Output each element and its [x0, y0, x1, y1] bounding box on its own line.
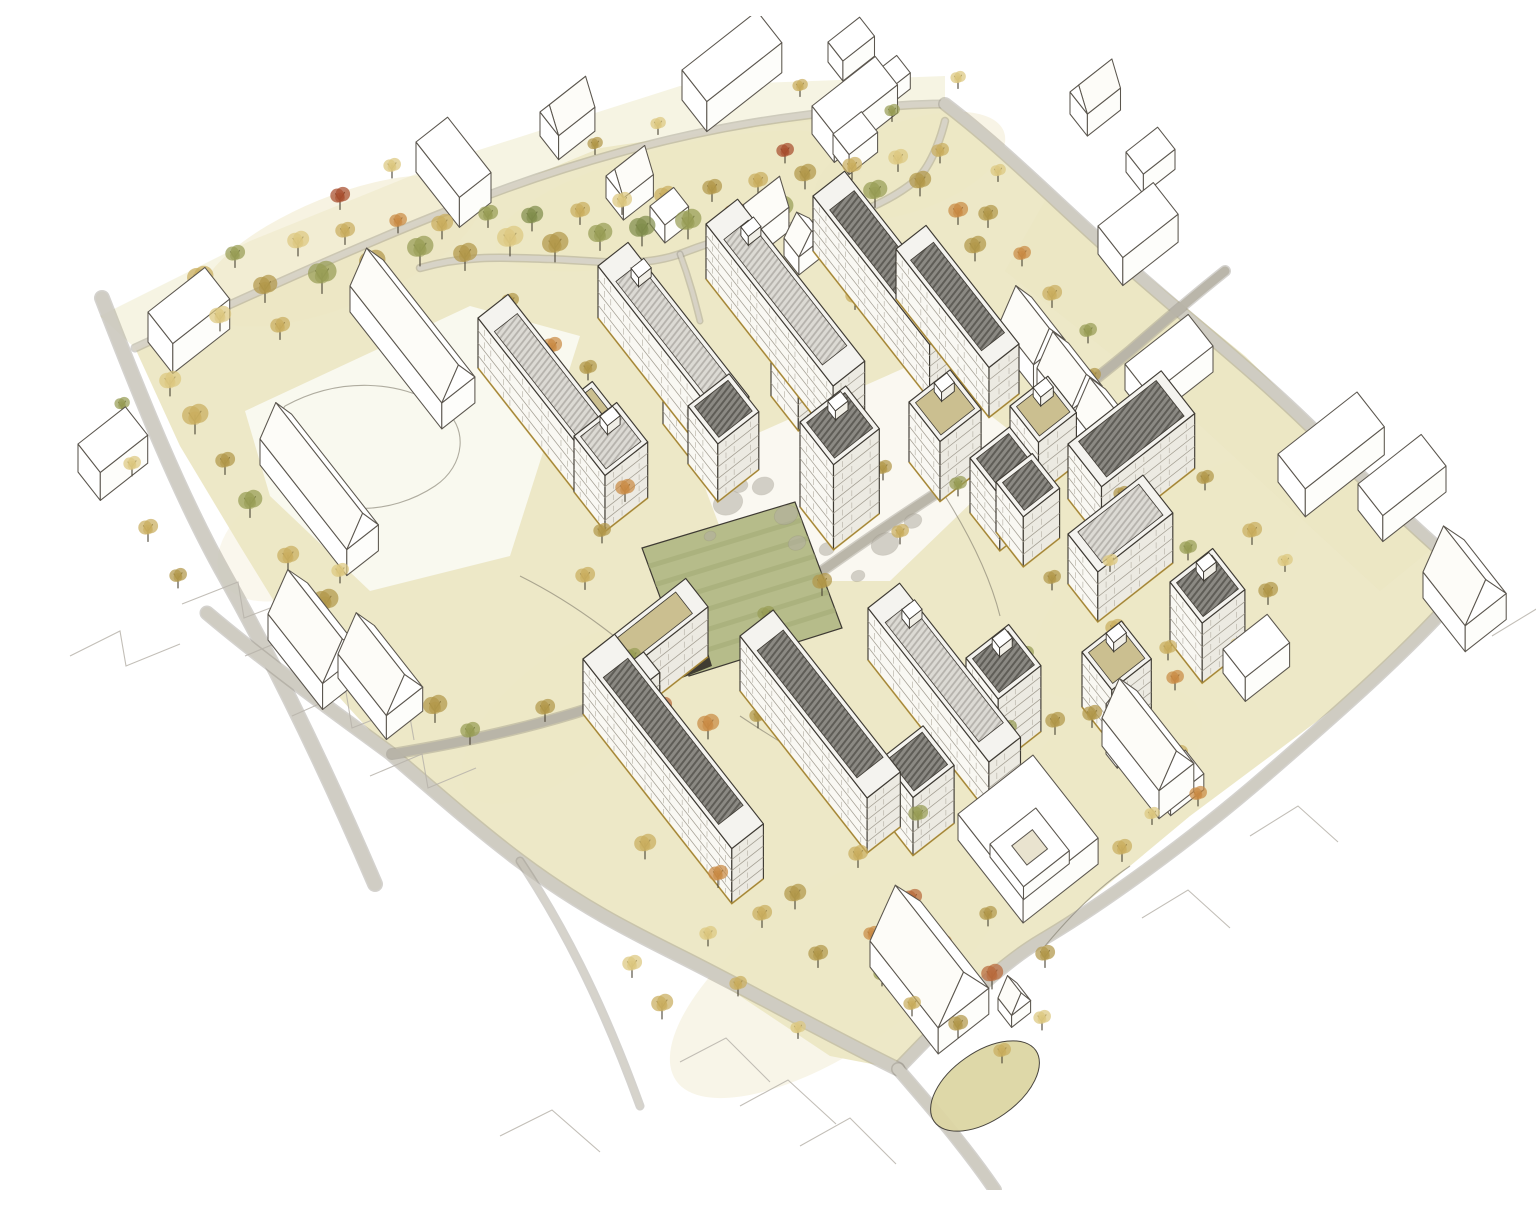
tree-canopy: [1263, 588, 1273, 598]
context-building: [78, 407, 148, 501]
context-building: [1098, 183, 1178, 286]
faint-context-outline: [70, 631, 180, 666]
tree-canopy: [215, 312, 226, 323]
tree: [1033, 1010, 1051, 1030]
faint-context-outline: [500, 1110, 600, 1152]
tree-canopy: [527, 212, 538, 223]
tree-canopy: [987, 970, 998, 981]
tree-canopy: [936, 148, 945, 157]
tree-canopy: [703, 720, 714, 731]
tree-canopy: [627, 961, 637, 971]
tree-canopy: [1247, 528, 1257, 538]
context-building: [1126, 127, 1175, 194]
tree-canopy: [953, 208, 963, 218]
tree-canopy: [869, 187, 881, 199]
tree-canopy: [640, 840, 651, 851]
tree-canopy: [575, 208, 585, 218]
masterplan-illustration: [40, 16, 1536, 1190]
tree-canopy: [394, 218, 403, 227]
tree-canopy: [174, 573, 183, 582]
tree: [950, 71, 965, 89]
context-house: [998, 976, 1031, 1028]
tree-canopy: [983, 211, 993, 221]
tree-canopy: [1171, 675, 1180, 684]
tree-canopy: [388, 163, 397, 172]
tree-canopy: [1084, 328, 1093, 337]
tree-canopy: [713, 871, 723, 881]
tree-canopy: [128, 461, 137, 470]
tree-canopy: [853, 851, 863, 861]
tree-canopy: [1164, 645, 1173, 654]
tree: [622, 955, 642, 978]
tree-canopy: [796, 83, 804, 91]
tree-canopy: [954, 481, 963, 490]
tree-canopy: [1048, 575, 1057, 584]
tree-canopy: [800, 170, 811, 181]
tree-canopy: [896, 529, 905, 538]
tree-canopy: [790, 890, 801, 901]
tree-canopy: [275, 323, 285, 333]
tree-canopy: [1038, 1015, 1047, 1024]
tree-canopy: [503, 234, 516, 247]
tree-canopy: [913, 811, 923, 821]
tree-canopy: [970, 242, 981, 253]
tree-canopy: [1087, 711, 1097, 721]
tree-canopy: [459, 250, 471, 262]
tree-canopy: [293, 237, 304, 248]
tree-canopy: [953, 1021, 963, 1031]
tree-canopy: [335, 193, 345, 203]
context-house: [1070, 59, 1121, 136]
tree-canopy: [598, 528, 607, 537]
tree-canopy: [220, 458, 230, 468]
context-house: [1423, 526, 1506, 652]
tree-canopy: [617, 198, 627, 208]
tree-canopy: [465, 728, 475, 738]
tree-canopy: [230, 251, 240, 261]
tree: [651, 994, 673, 1019]
tree-canopy: [548, 240, 561, 253]
tree-canopy: [654, 121, 662, 129]
tree-canopy: [657, 1000, 668, 1011]
tree-canopy: [437, 220, 448, 231]
tree-canopy: [283, 552, 294, 563]
tree-canopy: [315, 269, 329, 283]
tree-canopy: [143, 525, 153, 535]
tree-canopy: [1194, 791, 1203, 800]
tree-canopy: [1117, 845, 1127, 855]
tree-canopy: [908, 1001, 917, 1010]
tree-canopy: [893, 155, 903, 165]
tree-canopy: [915, 177, 926, 188]
tree-canopy: [998, 1048, 1007, 1057]
tree-canopy: [620, 485, 630, 495]
tree-canopy: [540, 705, 550, 715]
tree-canopy: [165, 377, 176, 388]
tree-canopy: [1050, 718, 1060, 728]
tree-canopy: [259, 282, 271, 294]
tree: [138, 519, 158, 542]
tree: [169, 568, 187, 588]
tree-canopy: [591, 141, 599, 149]
tree-canopy: [704, 931, 713, 940]
tree: [383, 158, 401, 178]
tree-canopy: [594, 230, 606, 242]
tree-canopy: [994, 168, 1002, 176]
tree-canopy: [813, 951, 823, 961]
tree-canopy: [1201, 475, 1210, 484]
tree-canopy: [635, 224, 648, 237]
tree-canopy: [413, 244, 426, 257]
tree-canopy: [781, 148, 790, 157]
tree-canopy: [244, 497, 256, 509]
tree-canopy: [1047, 291, 1057, 301]
tree-canopy: [954, 75, 962, 83]
tree-canopy: [984, 911, 993, 920]
tree-canopy: [681, 217, 694, 230]
masterplan-canvas: [40, 16, 1536, 1190]
tree-canopy: [888, 108, 896, 116]
faint-context-outline: [800, 1118, 896, 1164]
tree-canopy: [483, 211, 493, 221]
tree-canopy: [336, 568, 345, 577]
tree-canopy: [817, 579, 827, 589]
tree-canopy: [757, 911, 767, 921]
tree-canopy: [1148, 811, 1156, 819]
tree-canopy: [1184, 545, 1193, 554]
tree-canopy: [584, 365, 593, 374]
tree-canopy: [753, 178, 763, 188]
tree-canopy: [794, 1025, 802, 1033]
tree: [1035, 945, 1055, 968]
tree-canopy: [1281, 558, 1289, 566]
tree-canopy: [879, 465, 888, 474]
tree-canopy: [1040, 951, 1050, 961]
tree-canopy: [188, 412, 201, 425]
tree-canopy: [734, 981, 743, 990]
tree-canopy: [707, 185, 717, 195]
faint-context-outline: [1250, 806, 1338, 842]
tree-canopy: [340, 228, 350, 238]
tree-canopy: [1106, 558, 1114, 566]
tree-canopy: [580, 573, 590, 583]
faint-context-outline: [1142, 890, 1230, 928]
tree-canopy: [429, 702, 441, 714]
tree-canopy: [847, 163, 857, 173]
tree-canopy: [1018, 251, 1027, 260]
